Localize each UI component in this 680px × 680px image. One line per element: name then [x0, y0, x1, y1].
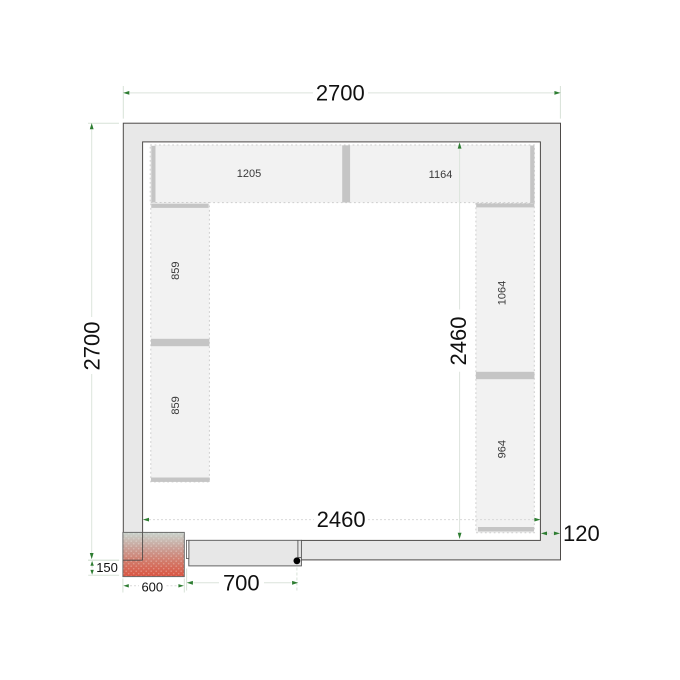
svg-text:700: 700 [223, 571, 260, 596]
svg-text:859: 859 [170, 396, 182, 414]
svg-text:964: 964 [496, 440, 508, 458]
svg-text:2460: 2460 [317, 507, 366, 532]
svg-text:2460: 2460 [446, 317, 471, 366]
svg-text:1205: 1205 [237, 168, 261, 180]
svg-text:2700: 2700 [316, 81, 365, 106]
svg-text:150: 150 [96, 560, 118, 575]
svg-text:1164: 1164 [429, 169, 453, 181]
svg-text:2700: 2700 [80, 322, 105, 371]
svg-text:1064: 1064 [496, 281, 508, 305]
svg-text:859: 859 [170, 262, 182, 280]
svg-text:600: 600 [141, 579, 163, 594]
svg-text:120: 120 [563, 521, 600, 546]
